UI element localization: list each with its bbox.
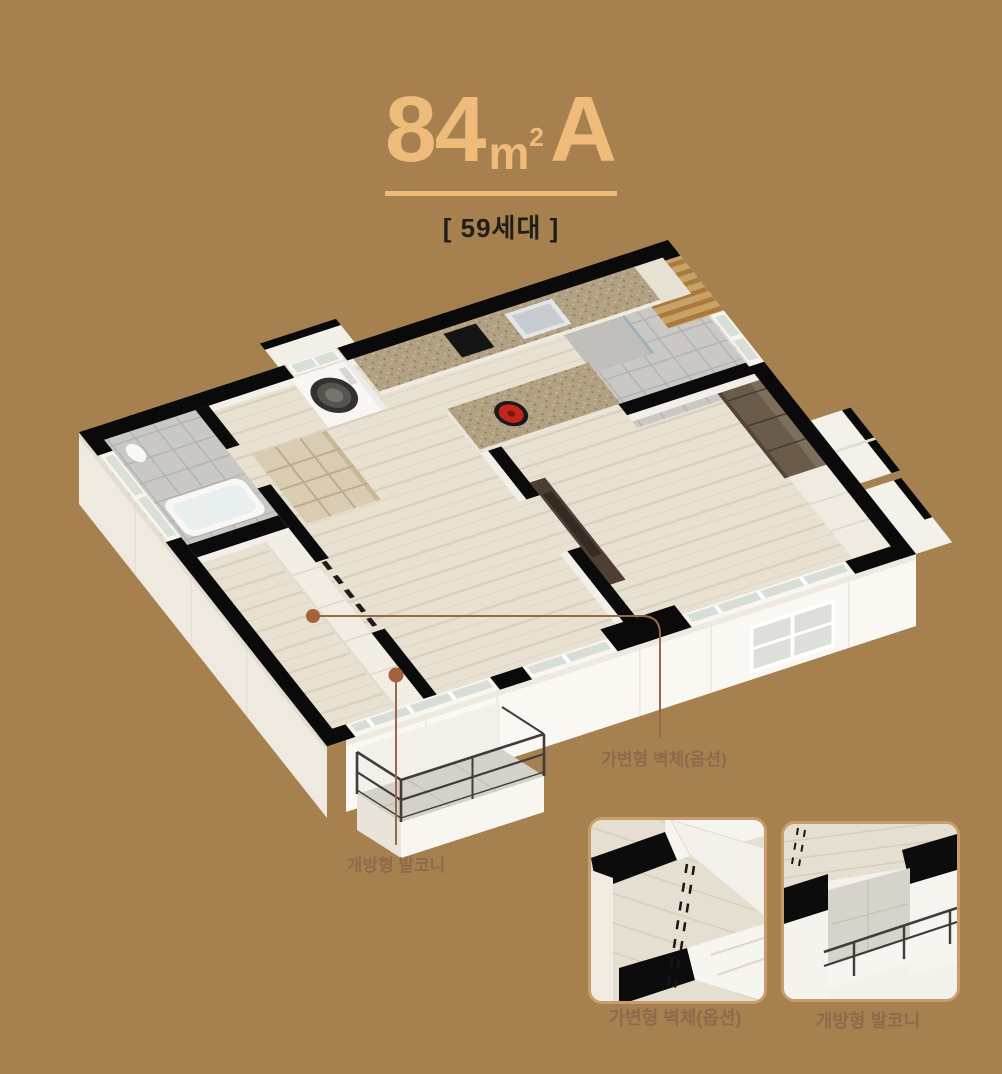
callout-label-open-balcony: 개방형 발코니 — [320, 851, 472, 876]
leader-dot-balcony — [389, 668, 404, 683]
plan-top-surface — [60, 203, 956, 746]
leader-dot-wall — [306, 609, 320, 623]
inset-open-balcony — [781, 821, 960, 1002]
inset-open-balcony-image — [784, 824, 957, 999]
inset-caption-open-balcony: 개방형 발코니 — [777, 1007, 959, 1033]
floor-plan-poster: { "title": { "area": "84", "unit": "m", … — [0, 0, 1002, 1074]
inset-movable-wall-image — [591, 820, 764, 1001]
callout-label-movable-wall: 가변형 벽체(옵션) — [588, 745, 740, 770]
inset-movable-wall — [588, 817, 767, 1004]
inset-caption-movable-wall: 가변형 벽체(옵션) — [584, 1004, 766, 1030]
